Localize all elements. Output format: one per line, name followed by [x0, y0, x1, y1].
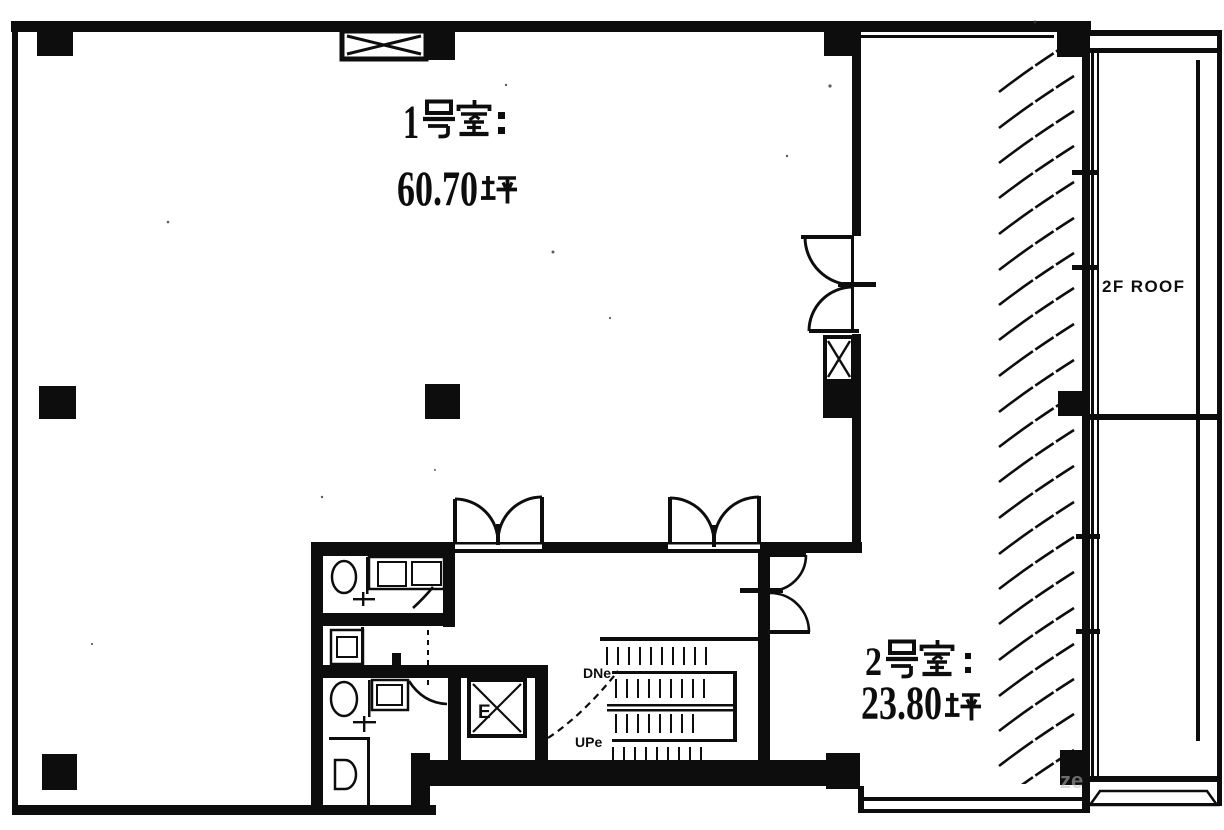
svg-text:23.80: 23.80 [861, 677, 942, 730]
svg-text:1: 1 [403, 96, 419, 149]
svg-text:E: E [478, 702, 491, 723]
svg-text:UPe: UPe [575, 734, 602, 750]
svg-text:60.70: 60.70 [397, 160, 478, 216]
svg-text:ze: ze [1060, 768, 1083, 793]
svg-text:2F ROOF: 2F ROOF [1102, 277, 1185, 296]
svg-text:DNe: DNe [583, 665, 611, 681]
